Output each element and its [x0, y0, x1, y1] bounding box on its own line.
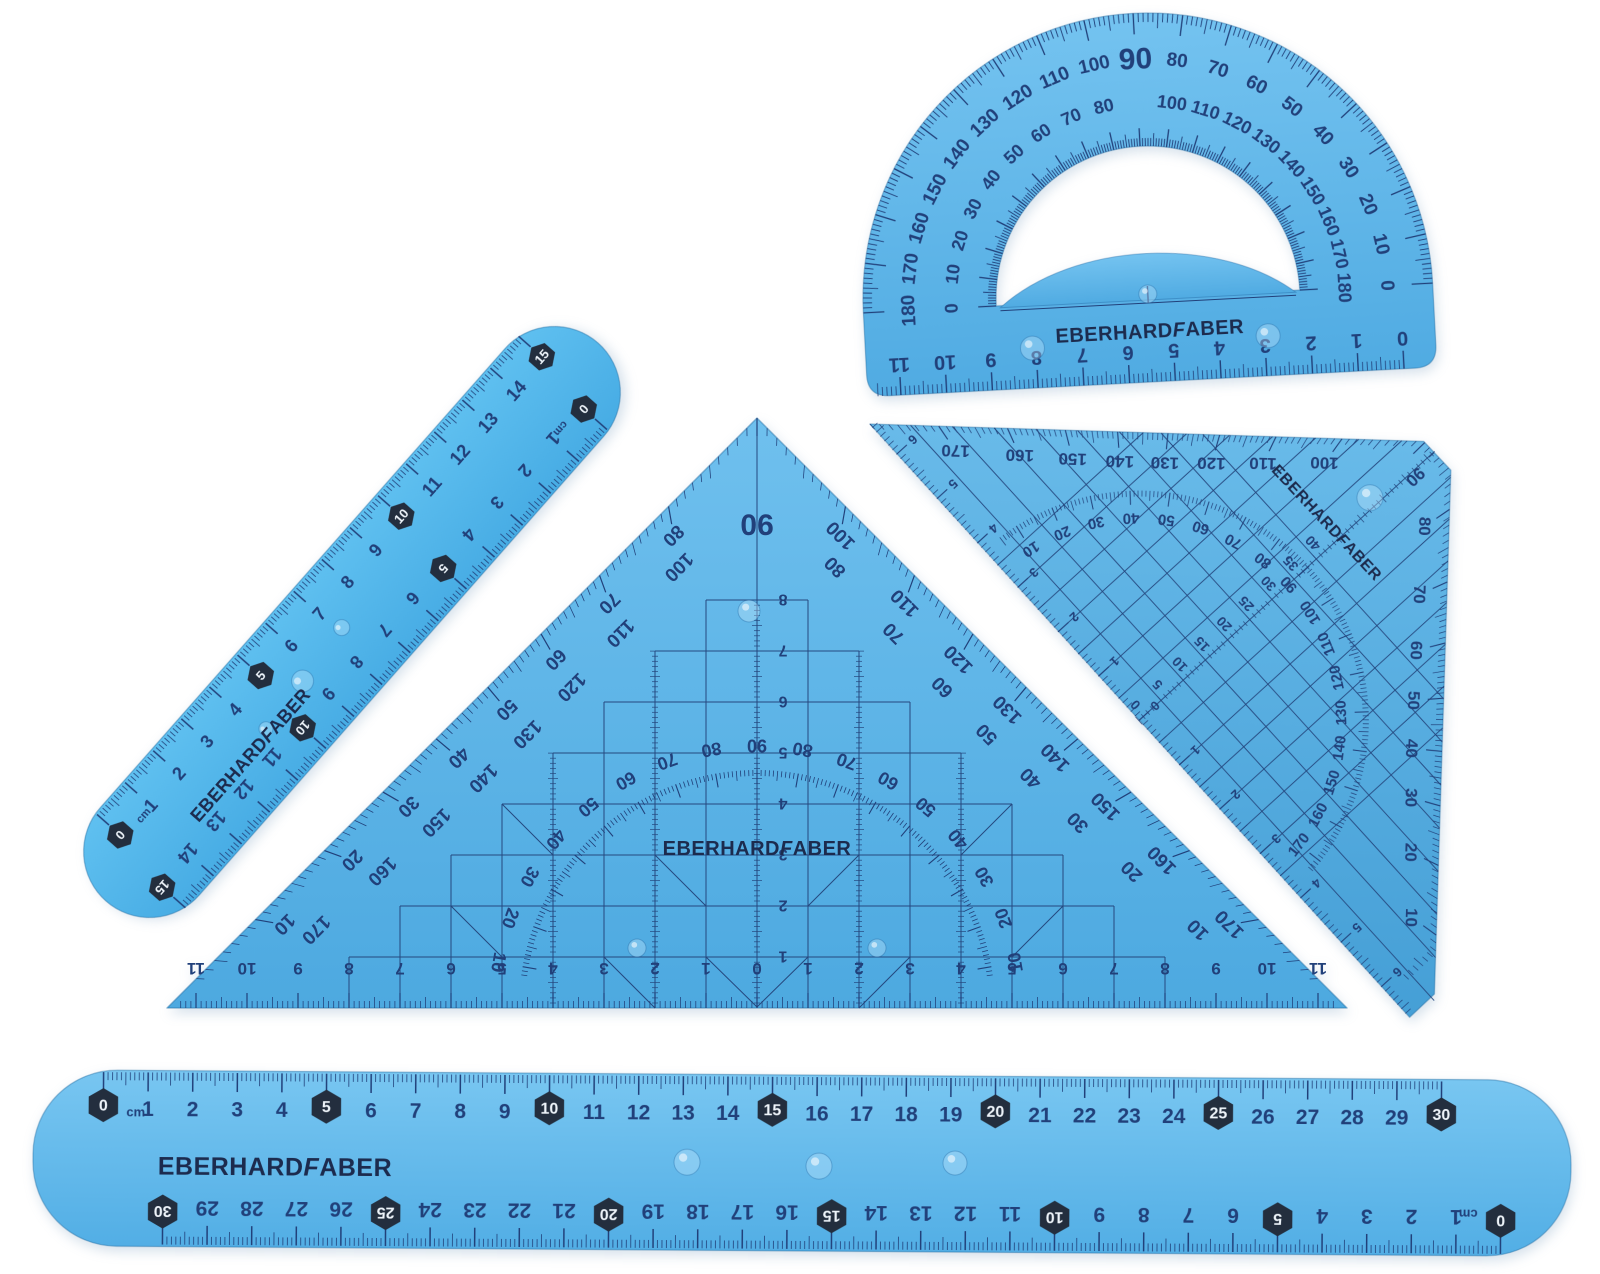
svg-text:1: 1 [1351, 329, 1363, 352]
svg-text:40: 40 [1122, 509, 1139, 527]
svg-text:120: 120 [1197, 454, 1226, 474]
svg-text:10: 10 [487, 951, 510, 974]
svg-text:11: 11 [187, 959, 205, 978]
svg-text:7: 7 [410, 1100, 422, 1123]
svg-text:2: 2 [778, 896, 787, 913]
svg-text:170: 170 [898, 252, 923, 286]
svg-text:6: 6 [446, 959, 455, 978]
svg-text:7: 7 [1183, 1203, 1195, 1226]
svg-text:28: 28 [1340, 1106, 1364, 1129]
set-square-small-svg: 6543210123456 10203040506070809010011012… [837, 412, 1476, 1051]
geometry-set-photo: 01234567891011 0102030405060708090100110… [0, 0, 1600, 1274]
svg-text:180: 180 [898, 294, 921, 327]
brand-logo: EBERHARDFABER [158, 1153, 393, 1183]
svg-text:17: 17 [731, 1200, 755, 1223]
svg-text:100: 100 [1310, 453, 1339, 473]
svg-text:13: 13 [909, 1201, 933, 1224]
svg-text:16: 16 [775, 1201, 799, 1224]
protractor: 01234567891011 0102030405060708090100110… [822, 0, 1462, 409]
svg-text:3: 3 [1361, 1205, 1373, 1228]
svg-text:90: 90 [747, 736, 767, 756]
unit-label-top: cm [126, 1104, 145, 1119]
svg-text:40: 40 [1402, 739, 1422, 759]
svg-text:70: 70 [1410, 584, 1430, 604]
svg-text:5: 5 [1273, 1210, 1282, 1227]
unit-label-bottom: cm [1459, 1207, 1478, 1222]
svg-text:2: 2 [1305, 331, 1317, 354]
suction-bumps [1357, 484, 1384, 511]
svg-text:11: 11 [583, 1101, 606, 1124]
svg-text:10: 10 [942, 263, 964, 285]
svg-text:90: 90 [740, 508, 773, 541]
svg-text:9: 9 [1093, 1203, 1105, 1226]
svg-text:9: 9 [985, 348, 997, 371]
svg-text:11: 11 [999, 1202, 1022, 1225]
svg-text:0: 0 [1496, 1211, 1505, 1228]
svg-text:15: 15 [823, 1207, 841, 1224]
svg-text:8: 8 [778, 590, 787, 607]
svg-text:6: 6 [1227, 1204, 1239, 1227]
svg-text:100: 100 [1156, 91, 1188, 115]
svg-text:2: 2 [1406, 1205, 1418, 1228]
svg-text:8: 8 [454, 1100, 466, 1123]
svg-text:80: 80 [1415, 517, 1435, 537]
svg-text:60: 60 [1406, 641, 1426, 661]
svg-text:23: 23 [463, 1198, 487, 1221]
svg-text:14: 14 [864, 1201, 888, 1224]
svg-text:19: 19 [642, 1200, 666, 1223]
svg-text:12: 12 [627, 1101, 651, 1124]
svg-text:4: 4 [1316, 1204, 1328, 1227]
svg-text:160: 160 [1005, 445, 1034, 465]
svg-text:30: 30 [1432, 1107, 1450, 1124]
svg-text:10: 10 [933, 350, 956, 373]
svg-text:170: 170 [941, 441, 970, 461]
svg-text:27: 27 [1296, 1106, 1320, 1129]
svg-text:26: 26 [329, 1197, 353, 1220]
svg-text:80: 80 [700, 738, 723, 761]
svg-text:0: 0 [1376, 280, 1398, 292]
svg-text:25: 25 [377, 1203, 395, 1220]
svg-text:20: 20 [600, 1205, 618, 1222]
svg-text:10: 10 [238, 959, 257, 978]
svg-text:50: 50 [1404, 691, 1424, 711]
svg-text:4: 4 [778, 794, 787, 811]
svg-text:15: 15 [763, 1102, 781, 1119]
svg-text:6: 6 [365, 1099, 377, 1122]
svg-text:10: 10 [540, 1101, 558, 1118]
svg-text:80: 80 [791, 738, 814, 761]
svg-text:6: 6 [778, 692, 787, 709]
svg-text:23: 23 [1117, 1105, 1141, 1128]
svg-text:10: 10 [1402, 908, 1422, 928]
svg-text:3: 3 [231, 1098, 243, 1121]
svg-text:0: 0 [99, 1098, 108, 1115]
svg-text:7: 7 [778, 641, 787, 658]
svg-text:50: 50 [1157, 510, 1176, 529]
svg-text:5: 5 [322, 1099, 331, 1116]
svg-text:1: 1 [803, 959, 812, 978]
svg-text:4: 4 [276, 1099, 288, 1122]
svg-text:0: 0 [1396, 326, 1408, 349]
svg-text:3: 3 [599, 959, 608, 978]
svg-text:150: 150 [1058, 449, 1087, 469]
svg-text:9: 9 [293, 959, 302, 978]
svg-text:12: 12 [954, 1202, 978, 1225]
svg-text:10: 10 [1046, 1208, 1064, 1225]
svg-text:20: 20 [1401, 843, 1421, 863]
svg-text:140: 140 [1105, 451, 1134, 471]
svg-text:140: 140 [1330, 735, 1350, 762]
svg-text:28: 28 [240, 1197, 264, 1220]
svg-text:13: 13 [671, 1101, 695, 1124]
svg-text:8: 8 [1138, 1203, 1150, 1226]
protractor-svg: 01234567891011 0102030405060708090100110… [822, 0, 1462, 409]
set-square-small: 6543210123456 10203040506070809010011012… [837, 412, 1476, 1051]
svg-text:22: 22 [1073, 1104, 1097, 1127]
svg-text:26: 26 [1251, 1105, 1275, 1128]
svg-text:27: 27 [285, 1197, 309, 1220]
svg-text:5: 5 [778, 743, 787, 760]
svg-text:14: 14 [716, 1102, 740, 1125]
svg-text:130: 130 [1150, 453, 1179, 473]
svg-text:7: 7 [395, 959, 404, 978]
svg-text:20: 20 [986, 1104, 1004, 1121]
svg-text:16: 16 [805, 1102, 829, 1125]
svg-text:19: 19 [939, 1103, 963, 1126]
svg-text:2: 2 [187, 1098, 199, 1121]
svg-text:17: 17 [850, 1103, 874, 1126]
svg-text:130: 130 [1332, 700, 1350, 726]
ruler-30cm: 0123456789101112131415161718192021222324… [26, 1065, 1577, 1262]
svg-text:4: 4 [548, 959, 558, 978]
brand-logo: EBERHARDFABER [663, 838, 852, 860]
svg-text:8: 8 [344, 959, 353, 978]
svg-text:180: 180 [1334, 272, 1356, 303]
svg-text:29: 29 [196, 1196, 220, 1219]
svg-text:29: 29 [1385, 1106, 1409, 1129]
svg-text:80: 80 [1165, 49, 1189, 72]
svg-text:0: 0 [941, 303, 961, 314]
svg-text:21: 21 [552, 1199, 576, 1222]
svg-text:2: 2 [650, 959, 659, 978]
svg-text:21: 21 [1028, 1104, 1052, 1127]
ruler-30cm-svg: 0123456789101112131415161718192021222324… [26, 1065, 1577, 1262]
svg-text:0: 0 [752, 959, 761, 978]
svg-text:18: 18 [894, 1103, 918, 1126]
svg-text:11: 11 [888, 353, 910, 376]
svg-text:1: 1 [701, 959, 710, 978]
svg-text:30: 30 [1086, 512, 1106, 532]
svg-text:90: 90 [1118, 42, 1153, 77]
svg-text:1: 1 [778, 947, 787, 964]
svg-text:30: 30 [1401, 788, 1421, 808]
svg-text:24: 24 [1162, 1105, 1186, 1128]
svg-text:25: 25 [1209, 1105, 1227, 1122]
svg-text:24: 24 [418, 1198, 442, 1221]
svg-text:30: 30 [154, 1202, 172, 1219]
svg-text:22: 22 [508, 1199, 532, 1222]
svg-text:18: 18 [686, 1200, 710, 1223]
svg-text:9: 9 [499, 1100, 511, 1123]
